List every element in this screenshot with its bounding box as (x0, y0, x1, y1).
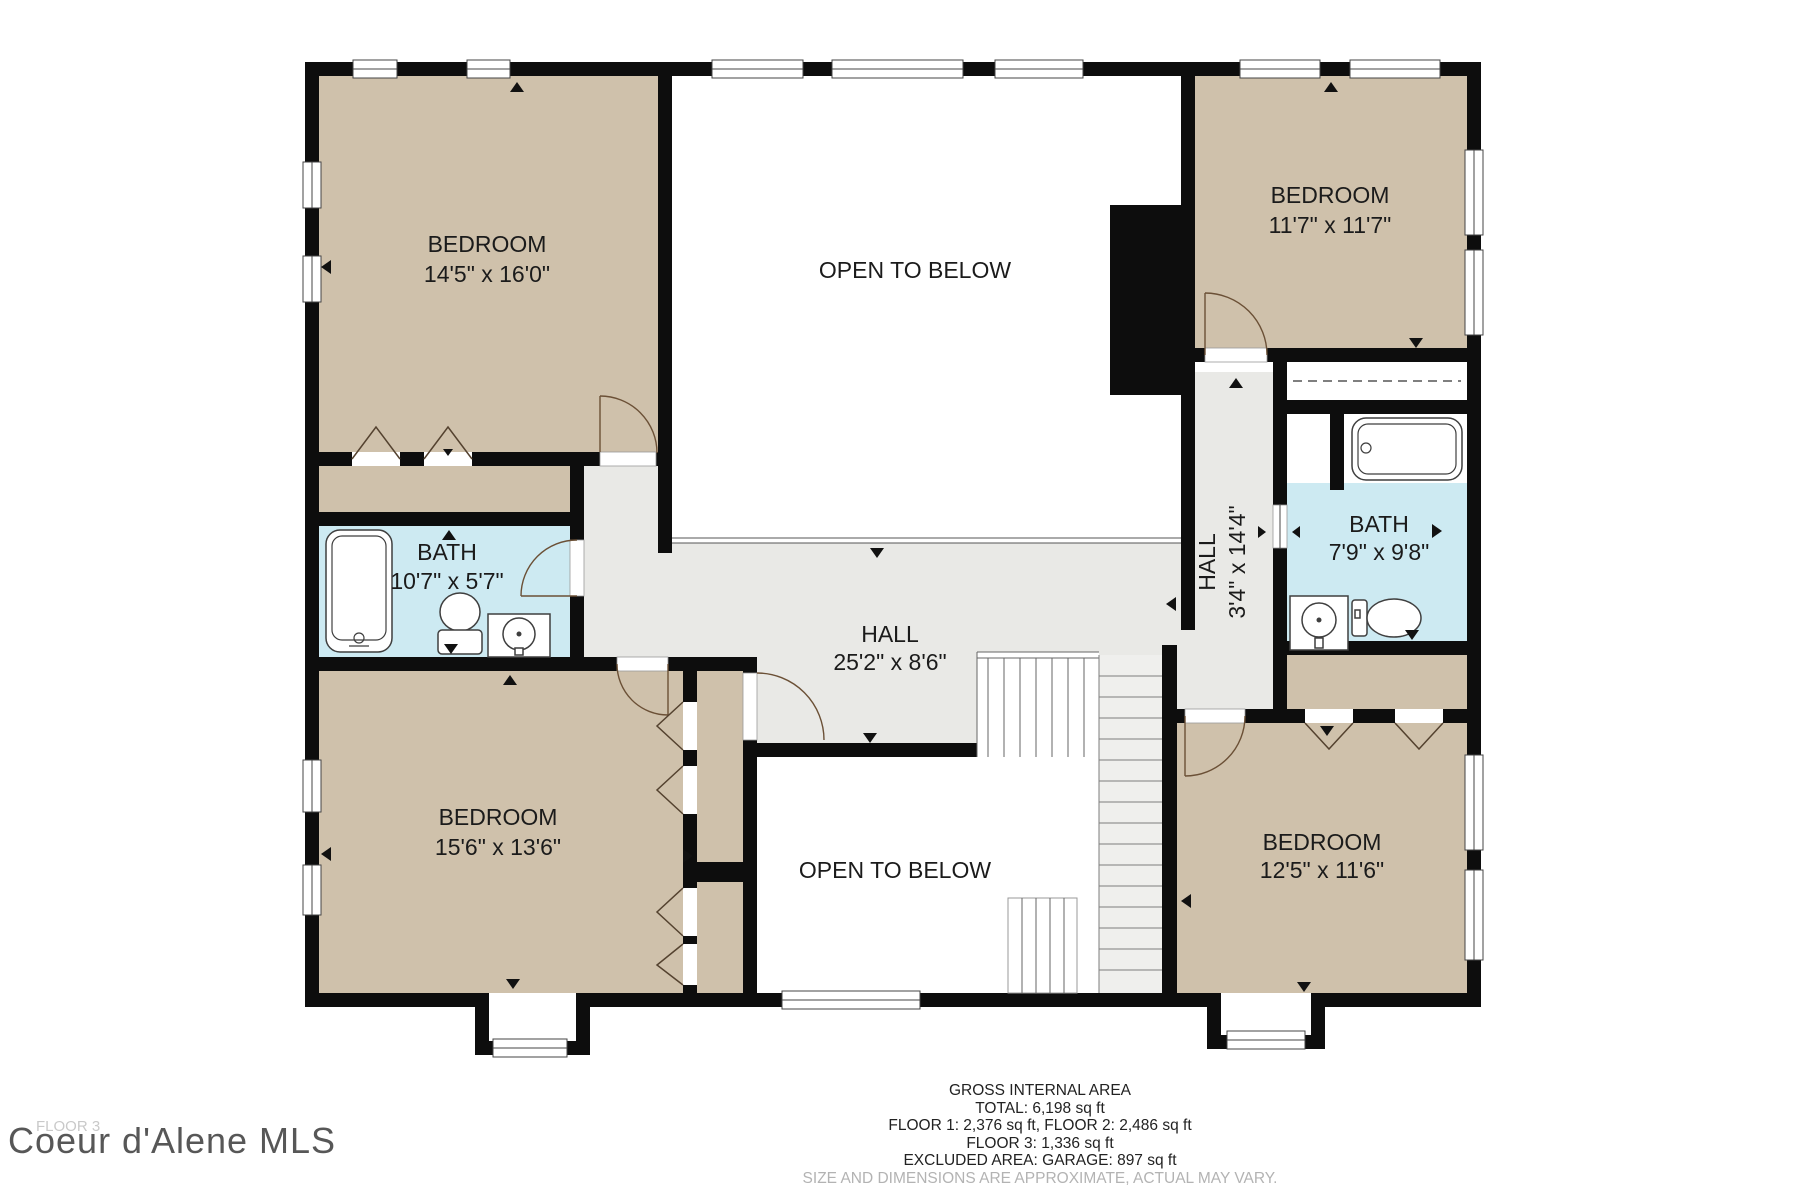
open-below-edge (977, 743, 1099, 757)
area-summary-floor-3: FLOOR 3: 1,336 sq ft (640, 1135, 1440, 1153)
bay-right-interior (1221, 993, 1311, 1035)
bedroom-bottom-left-label: BEDROOM (439, 804, 558, 830)
mls-watermark: Coeur d'Alene MLS (8, 1120, 336, 1162)
floor-plan-page: BEDROOM 14'5" x 16'0" OPEN TO BELOW BEDR… (0, 0, 1800, 1200)
stair-landing (1008, 898, 1077, 993)
hall-junction-b (1177, 630, 1273, 709)
hall-vertical-label: HALL (1194, 533, 1220, 591)
bedroom-top-left-label: BEDROOM (428, 231, 547, 257)
area-summary-disclaimer: SIZE AND DIMENSIONS ARE APPROXIMATE, ACT… (640, 1170, 1440, 1188)
bedroom-bottom-right-label: BEDROOM (1263, 829, 1382, 855)
hall-junction-a (1162, 543, 1181, 645)
bathtub-icon (326, 530, 392, 652)
hall-main-label: HALL (861, 621, 919, 647)
bath-right-label: BATH (1349, 511, 1409, 537)
bay-left-interior (489, 993, 576, 1041)
area-summary-title: GROSS INTERNAL AREA (640, 1082, 1440, 1100)
sink-icon (488, 614, 550, 657)
bedroom-top-right-label: BEDROOM (1271, 182, 1390, 208)
closet-strip-top-left (319, 466, 570, 512)
bedroom-top-left-dims: 14'5" x 16'0" (424, 261, 550, 287)
floor-plan-drawing: BEDROOM 14'5" x 16'0" OPEN TO BELOW BEDR… (0, 0, 1800, 1200)
bedroom-bottom-right-dims: 12'5" x 11'6" (1260, 857, 1384, 883)
bath-right-dims: 7'9" x 9'8" (1329, 539, 1430, 565)
door-bath-right (1273, 505, 1287, 548)
area-summary-excluded: EXCLUDED AREA: GARAGE: 897 sq ft (640, 1152, 1440, 1170)
bath-left-dims: 10'7" x 5'7" (390, 568, 503, 594)
sink-icon (1290, 596, 1348, 650)
room-open-to-below-top (672, 76, 1181, 543)
hall-vertical-dims: 3'4" x 14'4" (1224, 505, 1250, 618)
room-bedroom-bottom-left (319, 671, 683, 993)
stair-rail-area (977, 652, 1099, 757)
open-to-below-bottom-label: OPEN TO BELOW (799, 857, 991, 883)
closet-column-bottom-left (697, 671, 743, 993)
open-to-below-top-label: OPEN TO BELOW (819, 257, 1011, 283)
chimney-block (1110, 205, 1181, 395)
hall-main-dims: 25'2" x 8'6" (833, 649, 946, 675)
bedroom-top-right-dims: 11'7" x 11'7" (1269, 212, 1392, 238)
bedroom-bottom-left-dims: 15'6" x 13'6" (435, 834, 561, 860)
bathtub-icon (1352, 418, 1462, 480)
area-summary-floors-1-2: FLOOR 1: 2,376 sq ft, FLOOR 2: 2,486 sq … (640, 1117, 1440, 1135)
closet-strip-bottom-right (1287, 655, 1467, 709)
area-summary-total: TOTAL: 6,198 sq ft (640, 1100, 1440, 1118)
stair-treads-area (1099, 655, 1162, 993)
area-summary: GROSS INTERNAL AREA TOTAL: 6,198 sq ft F… (640, 1082, 1440, 1187)
bath-left-label: BATH (417, 539, 477, 565)
